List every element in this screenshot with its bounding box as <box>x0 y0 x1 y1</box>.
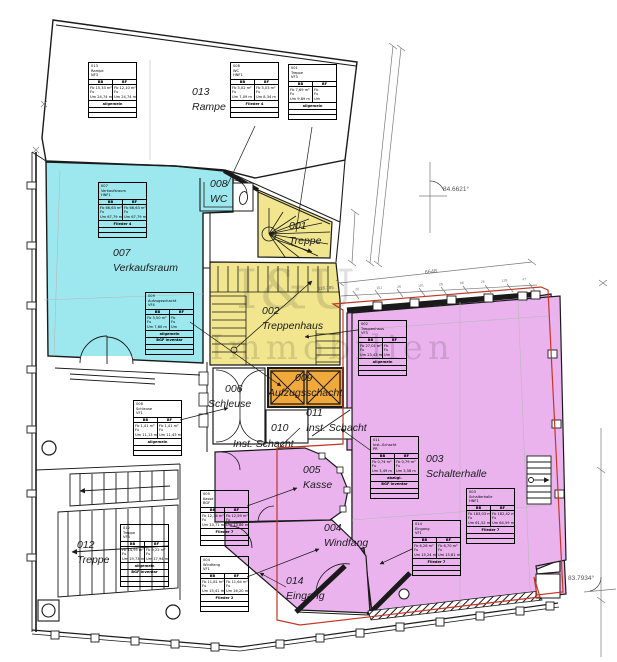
room-stamp-004: 004WindfangVF1BBBFFb 11,81 m²FuUm 15,41 … <box>200 556 249 612</box>
room-number: 010 <box>271 421 289 436</box>
room-stamp-011: 011Inst.-SchachtPRBBBFFb 0,74 m²FuUm 3,4… <box>370 436 419 499</box>
label-schacht-010: 010 <box>271 421 289 436</box>
room-stamp-007: 007VerkaufsraumHNF1BBBFFb 66,63 m²FuUm 6… <box>98 182 147 238</box>
label-treppe-012: 012 Treppe <box>77 538 110 568</box>
room-stamp-006: 006SchleuseVF1BBBFFb 1,41 m²FuUm 11,13 m… <box>133 400 182 456</box>
room-number: 003 <box>426 452 487 467</box>
room-name: Treppe <box>77 553 110 568</box>
dim-chain-tick: 26 <box>481 280 485 284</box>
room-number: 012 <box>77 538 110 553</box>
room-number: 009 <box>268 371 342 386</box>
label-windfang: 004 Windfang <box>324 521 368 551</box>
room-number: 007 <box>113 246 178 261</box>
angle-annotation-top: 84.6621° <box>443 186 469 193</box>
room-name: Inst. Schacht <box>306 421 367 436</box>
label-wc: 008 WC <box>210 177 228 207</box>
room-stamp-012: 012TreppeVF3BBBFFb 14,95 m²FuUm 19,73 mF… <box>120 524 169 587</box>
dim-chain-tick: 88 <box>460 281 464 285</box>
room-number: 005 <box>303 463 332 478</box>
dim-chain-tick: 128 <box>501 278 507 282</box>
dim-chain-tick: 151 <box>376 286 382 290</box>
room-stamp-005: 005KasseBGFBBBFFb 12,34 m²FuUm 13,71 mFb… <box>200 490 249 546</box>
room-number: 014 <box>286 574 325 589</box>
room-name: Treppe <box>289 234 322 249</box>
label-verkaufsraum: 007 Verkaufsraum <box>113 246 178 276</box>
room-stamp-009: 009AufzugsschachtVF4BBBFFb 3,50 m²FuUm 7… <box>145 292 194 355</box>
room-name: Windfang <box>324 536 368 551</box>
floor-plan-canvas: 6648 118.385 201512610126882612847 I&U I… <box>0 0 617 662</box>
dim-chain-tick: 20 <box>355 287 359 291</box>
room-name: Treppenhaus <box>262 319 323 334</box>
label-treppenhaus: 002 Treppenhaus <box>262 304 323 334</box>
room-name: Verkaufsraum <box>113 261 178 276</box>
room-number: 004 <box>324 521 368 536</box>
room-name: Rampe <box>192 100 226 115</box>
dim-span-label: 6648 <box>425 269 438 276</box>
room-name: WC <box>210 192 228 207</box>
label-kasse: 005 Kasse <box>303 463 332 493</box>
label-rampe: 013 Rampe <box>192 85 226 115</box>
room-number: 008 <box>210 177 228 192</box>
dim-chain-ticks: 201512610126882612847 <box>355 277 526 291</box>
dim-chain-tick: 47 <box>522 277 526 281</box>
room-stamp-013: 013RampeNF3BBBFFb 15,33 m²FuUm 24,74 mFb… <box>88 62 137 118</box>
dim-chain-tick: 26 <box>397 285 401 289</box>
angle-annotation-right: 83.7934° <box>568 575 594 582</box>
label-schleuse: 006 Schleuse <box>208 382 251 412</box>
room-stamp-001: 001TreppeVF3BBBFFb 7,69 m²FuUm 9,89 mFbF… <box>288 64 337 120</box>
label-eingang: 014 Eingang <box>286 574 325 604</box>
label-aufzugsschacht: 009 Aufzugsschacht <box>268 371 342 401</box>
label-schacht-011: 011 Inst. Schacht <box>306 406 367 436</box>
room-stamp-003: 003SchalterhalleHNF1BBBFFb 183,03 m²FuUm… <box>466 488 515 544</box>
dim-chain-tick: 101 <box>418 283 424 287</box>
room-stamp-002: 002TreppenhausVF3BBBFFb 27,01 m²FuUm 23,… <box>358 320 407 376</box>
room-number: 001 <box>289 219 322 234</box>
room-name: Schleuse <box>208 397 251 412</box>
room-name: Aufzugsschacht <box>268 386 342 401</box>
room-number: 006 <box>208 382 251 397</box>
room-name: Eingang <box>286 589 325 604</box>
room-name: Inst. Schacht <box>233 437 294 452</box>
room-number: 013 <box>192 85 226 100</box>
room-stamp-014: 014EingangVF1BBBFFb 6,26 m²FuUm 15,24 mF… <box>412 520 461 576</box>
label-schalterhalle: 003 Schalterhalle <box>426 452 487 482</box>
room-number: 011 <box>306 406 367 421</box>
room-name: Schalterhalle <box>426 467 487 482</box>
room-number: 002 <box>262 304 323 319</box>
label-schacht-011b: Inst. Schacht <box>233 437 294 452</box>
dim-chain-tick: 26 <box>439 282 443 286</box>
label-treppe-001: 001 Treppe <box>289 219 322 249</box>
room-name: Kasse <box>303 478 332 493</box>
room-stamp-008: 008WCHNF1BBBFFb 5,02 m²FuUm 7,09 mFb 5,0… <box>230 62 279 118</box>
